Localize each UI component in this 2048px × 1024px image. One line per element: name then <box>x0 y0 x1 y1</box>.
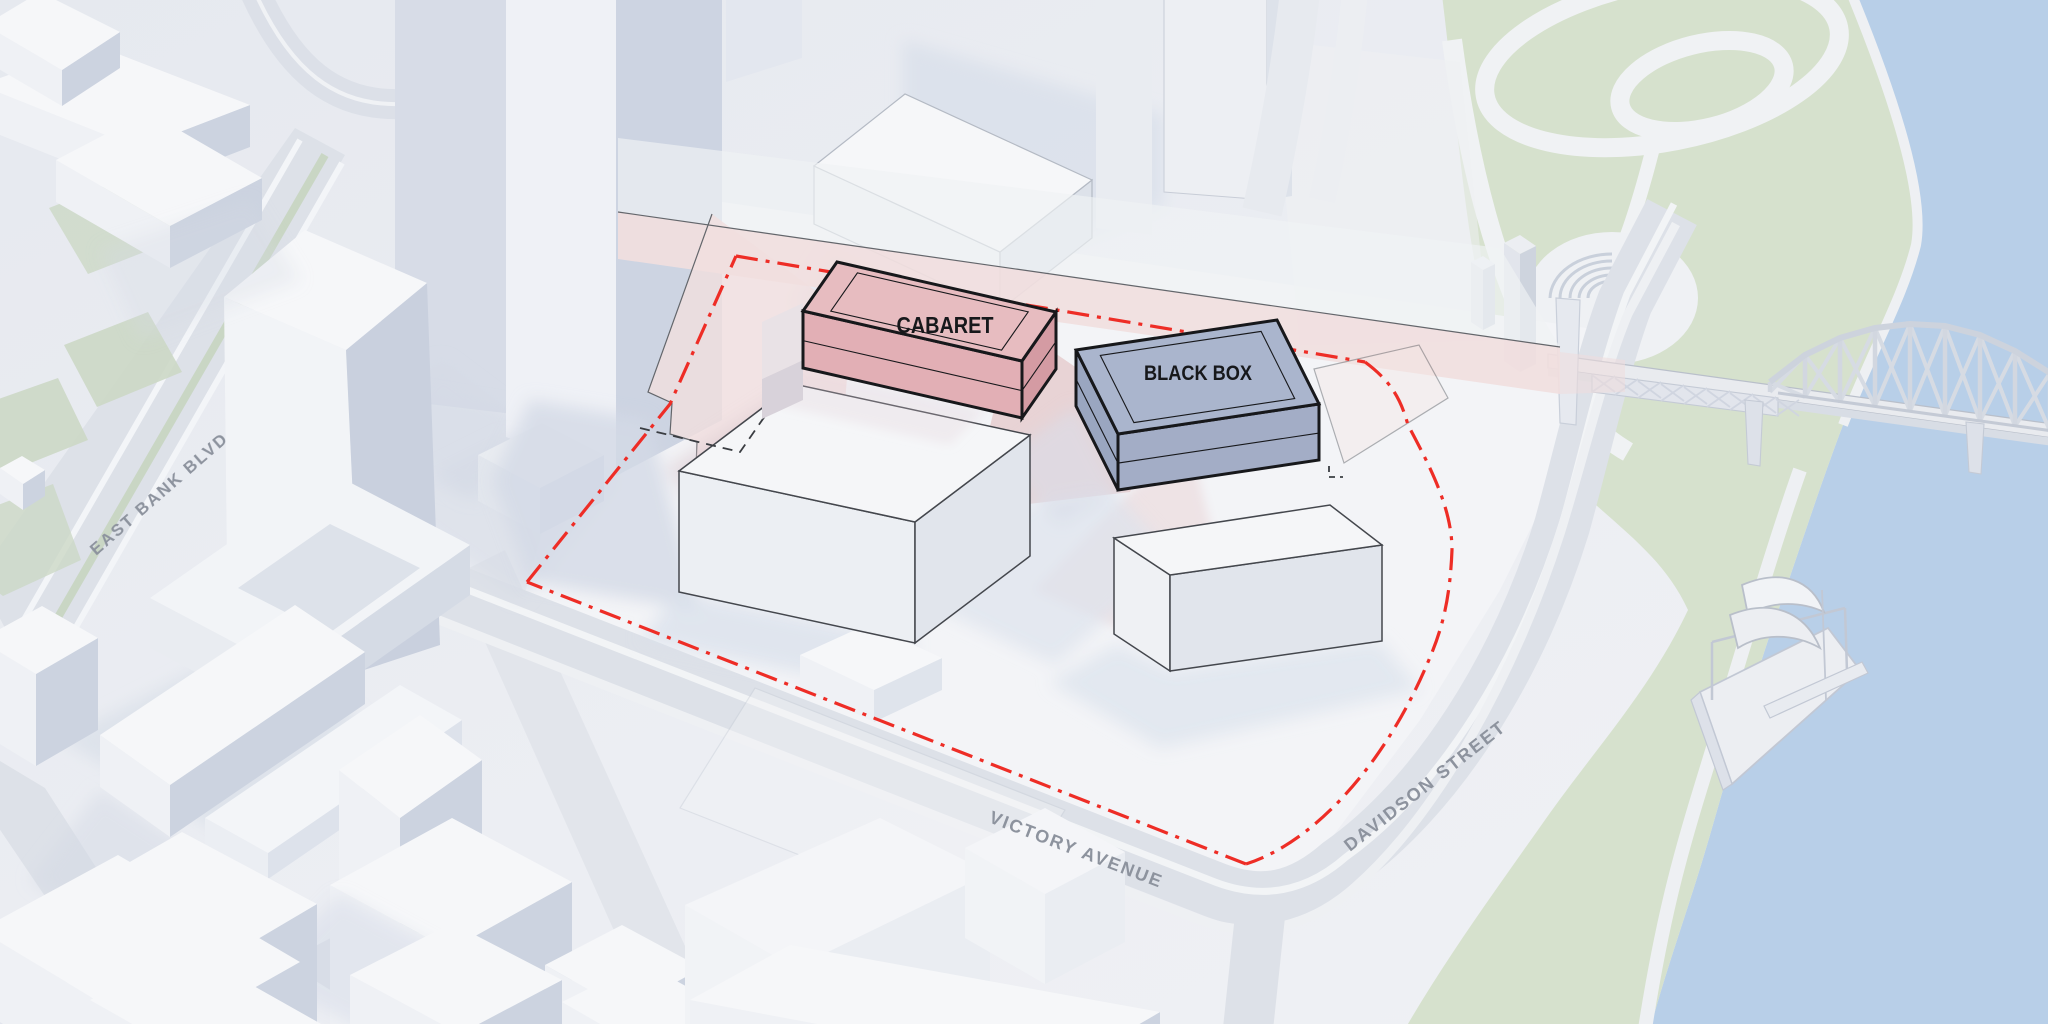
svg-text:BLACK BOX: BLACK BOX <box>1144 362 1252 385</box>
svg-text:CABARET: CABARET <box>897 312 994 338</box>
